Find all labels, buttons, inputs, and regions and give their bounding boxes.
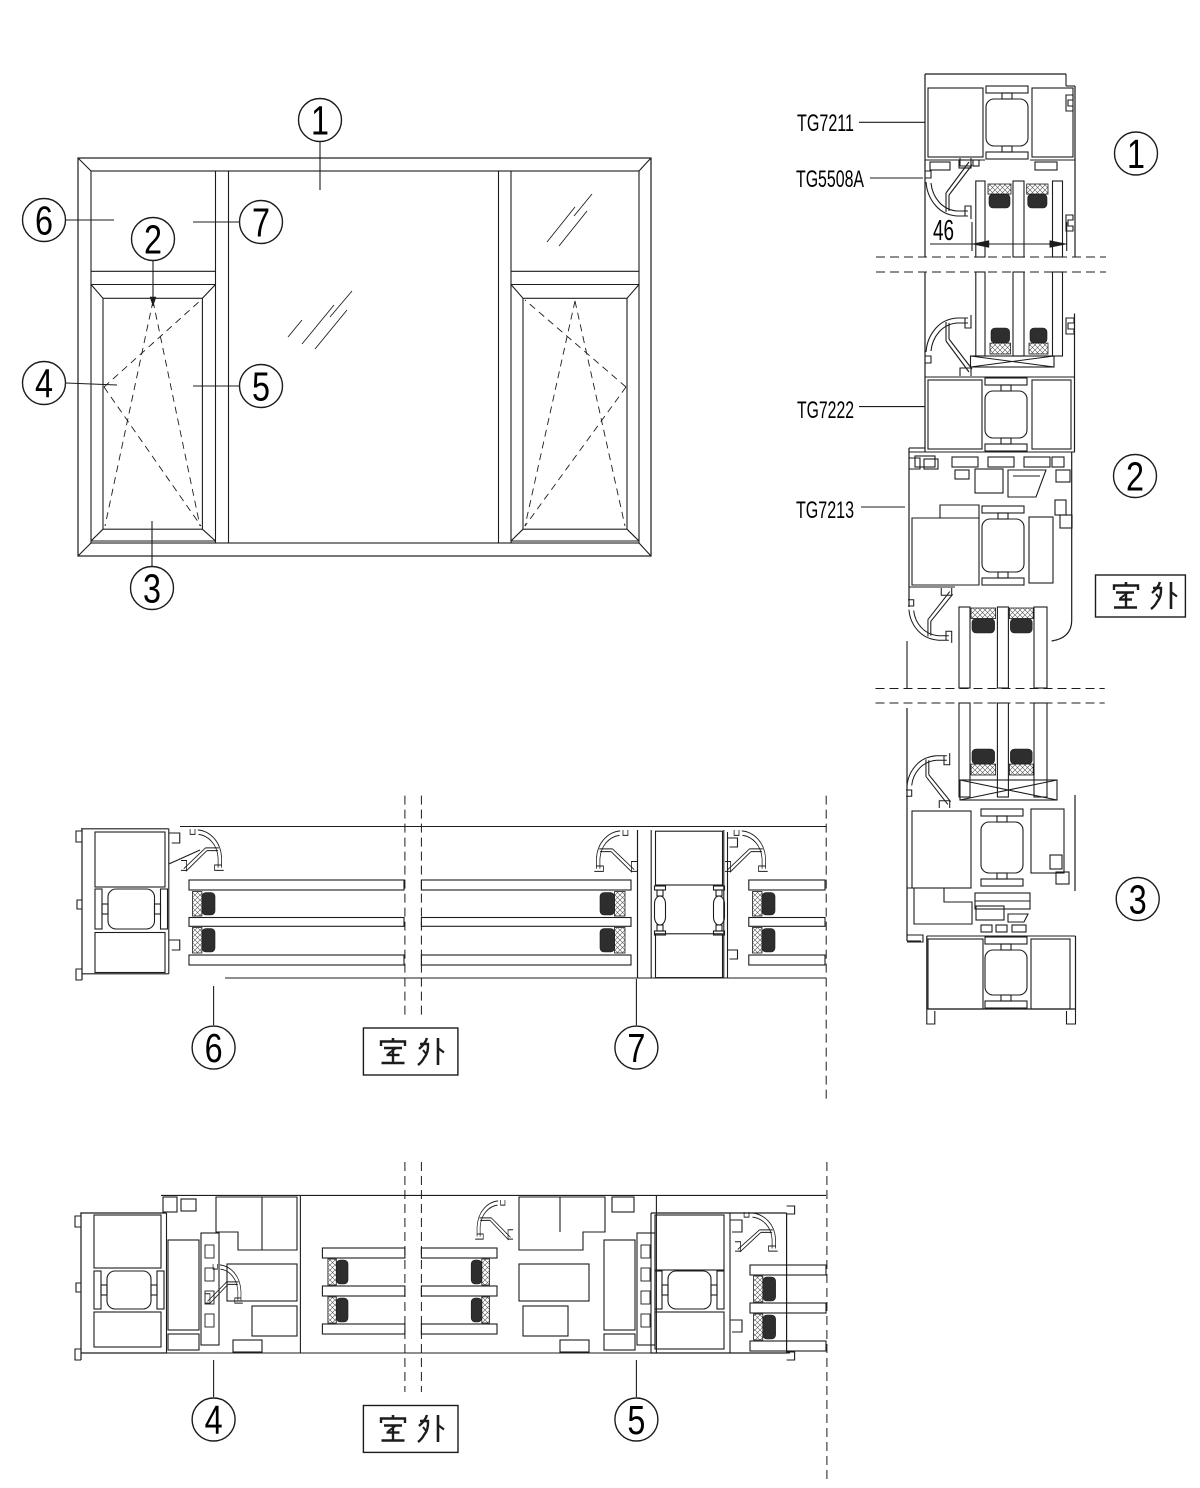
- svg-text:TG7211: TG7211: [797, 110, 854, 137]
- svg-text:1: 1: [1127, 131, 1145, 177]
- svg-text:7: 7: [627, 1025, 645, 1071]
- svg-text:1: 1: [311, 98, 329, 144]
- svg-text:2: 2: [1126, 454, 1144, 500]
- svg-text:7: 7: [252, 200, 270, 246]
- svg-text:2: 2: [144, 217, 162, 263]
- svg-text:3: 3: [1129, 877, 1147, 923]
- svg-text:6: 6: [35, 198, 53, 244]
- svg-text:4: 4: [205, 1397, 223, 1443]
- svg-text:TG7213: TG7213: [796, 497, 854, 524]
- svg-text:5: 5: [627, 1397, 645, 1443]
- svg-text:3: 3: [143, 566, 161, 612]
- svg-text:5: 5: [252, 364, 270, 410]
- svg-text:TG5508A: TG5508A: [796, 166, 864, 193]
- svg-text:TG7222: TG7222: [797, 397, 854, 424]
- svg-text:46: 46: [933, 215, 954, 247]
- svg-text:4: 4: [35, 361, 53, 407]
- svg-text:6: 6: [205, 1025, 223, 1071]
